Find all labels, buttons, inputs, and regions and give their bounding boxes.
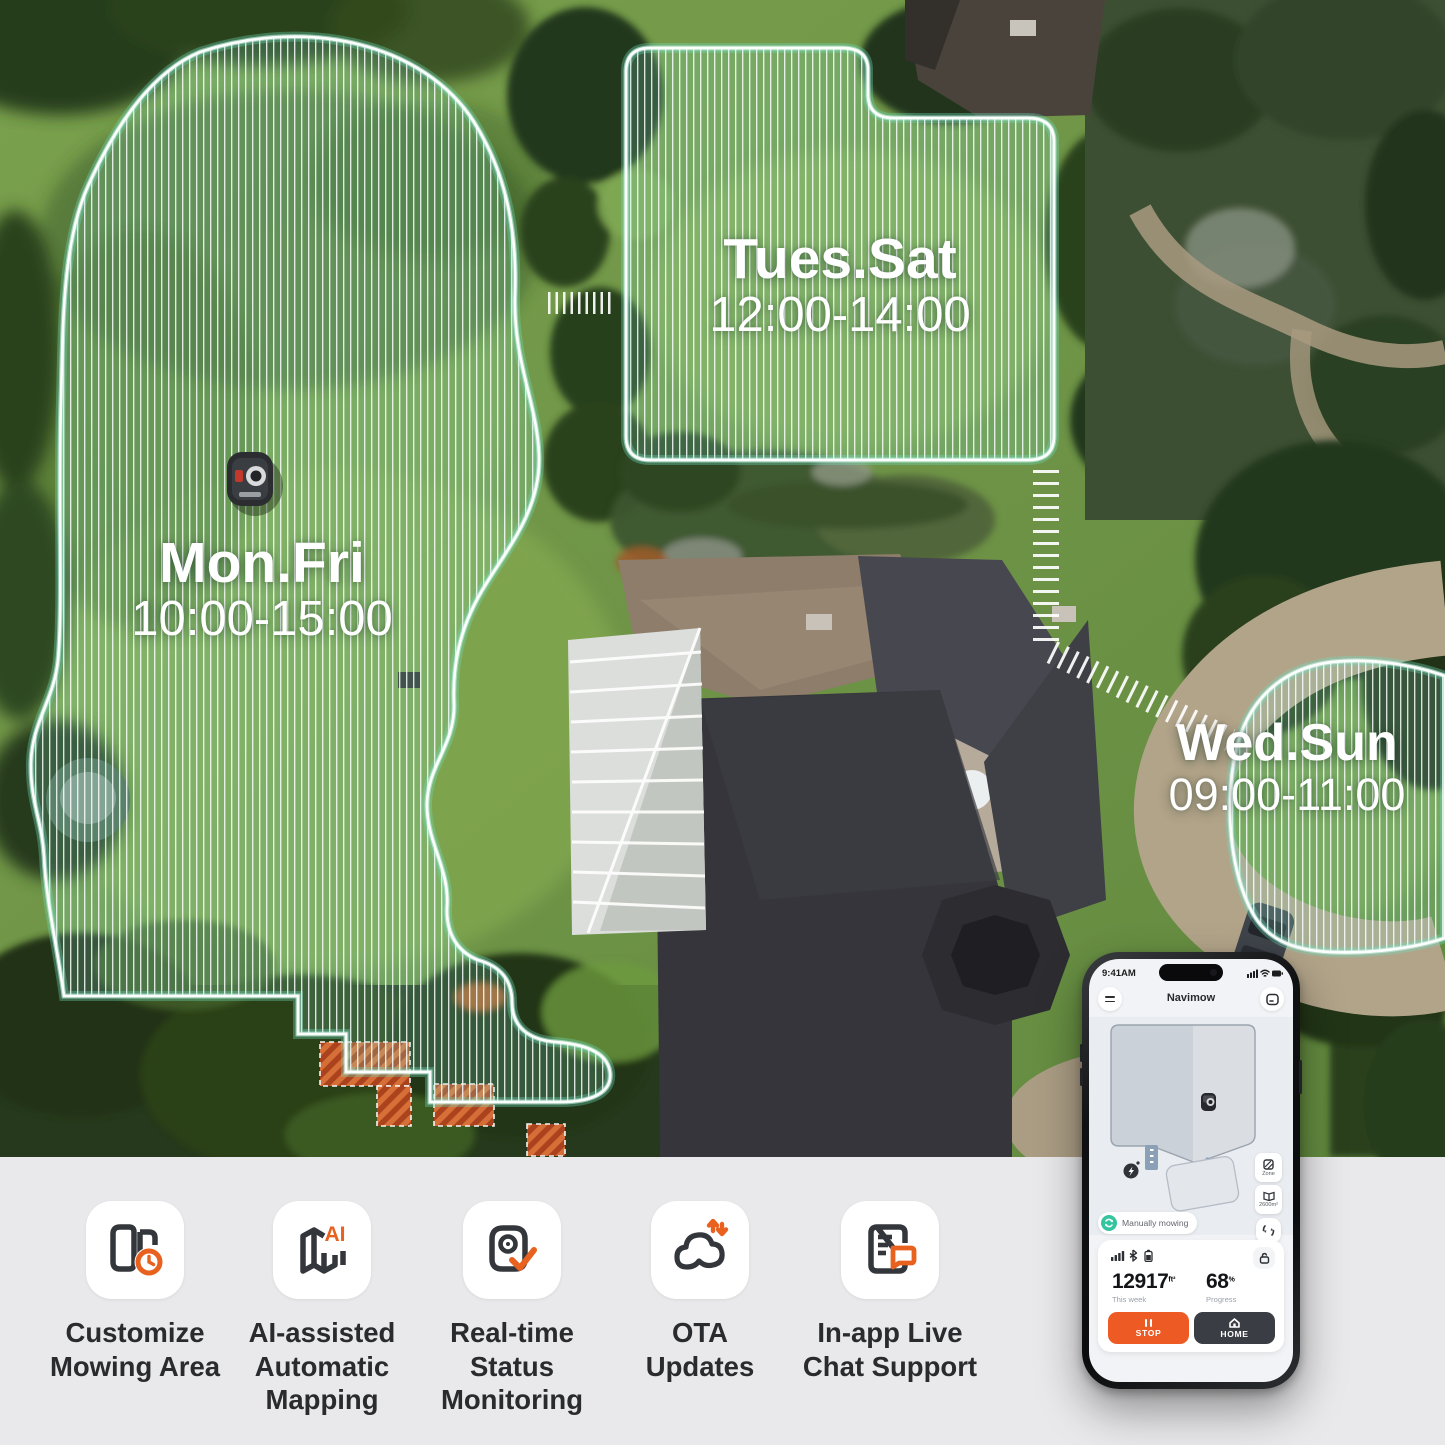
zones-clock-icon [104, 1219, 166, 1281]
stop-button[interactable]: STOP [1108, 1312, 1189, 1344]
progress-value: 68 [1206, 1270, 1229, 1293]
bluetooth-icon [1130, 1250, 1137, 1261]
app-map[interactable]: Zone 2600m² [1089, 1017, 1293, 1235]
message-icon [1266, 993, 1279, 1006]
phone-screen: 9:41AM Navimow [1089, 959, 1293, 1382]
support-chat-button[interactable] [1260, 987, 1284, 1011]
zone-button[interactable]: Zone [1255, 1153, 1282, 1182]
notch [1159, 964, 1223, 981]
battery-icon [1272, 971, 1281, 977]
turret-roof [922, 885, 1070, 1025]
stop-button-label: STOP [1136, 1328, 1162, 1338]
feature-tile [841, 1201, 939, 1299]
wifi-icon [1261, 970, 1269, 976]
map-area-label: 2600m² [1259, 1202, 1278, 1208]
map-mower-icon [1201, 1093, 1216, 1111]
home-button-label: HOME [1220, 1329, 1248, 1339]
map-home-marker [1124, 1161, 1140, 1178]
cloud-arrows-icon [669, 1219, 731, 1281]
home-icon [1229, 1318, 1240, 1328]
feature-label: Customize Mowing Area [35, 1316, 235, 1383]
area-unit: ft² [1168, 1277, 1175, 1284]
feature-label: Real-time Status Monitoring [412, 1316, 612, 1417]
status-icons [1247, 968, 1283, 978]
ai-badge: AI [325, 1223, 346, 1246]
map-ai-icon: AI [291, 1219, 353, 1281]
battery-icon [1145, 1250, 1152, 1262]
phone-mockup: 9:41AM Navimow [1082, 952, 1300, 1389]
area-value: 12917 [1112, 1270, 1168, 1293]
recenter-icon [1262, 1224, 1275, 1237]
progress-stat: 68% Progress [1206, 1270, 1236, 1304]
volume-up-button [1080, 1044, 1083, 1062]
feature-label: OTA Updates [600, 1316, 800, 1383]
camera-check-icon [481, 1219, 543, 1281]
home-button[interactable]: HOME [1194, 1312, 1275, 1344]
mowing-status-text: Manually mowing [1122, 1218, 1188, 1228]
lock-button[interactable] [1253, 1247, 1275, 1269]
progress-caption: Progress [1206, 1295, 1236, 1304]
feature-label: AI-assisted Automatic Mapping [222, 1316, 422, 1417]
feature-label: In-app Live Chat Support [790, 1316, 990, 1383]
area-stat: 12917ft² This week [1112, 1270, 1175, 1304]
zone-icon [1263, 1159, 1274, 1170]
feature-customize-mowing-area: Customize Mowing Area [35, 1201, 235, 1383]
status-time: 9:41AM [1102, 968, 1136, 979]
conservatory [568, 628, 706, 935]
area-caption: This week [1112, 1295, 1175, 1304]
feature-realtime-monitoring: Real-time Status Monitoring [412, 1201, 612, 1417]
mowing-status-pill[interactable]: Manually mowing [1098, 1212, 1197, 1234]
connectivity-icons [1111, 1249, 1167, 1262]
map-zone-secondary [1165, 1155, 1240, 1212]
feature-tile [651, 1201, 749, 1299]
unlock-icon [1259, 1252, 1270, 1264]
pause-icon [1145, 1319, 1153, 1327]
feature-ota-updates: OTA Updates [600, 1201, 800, 1383]
feature-tile [86, 1201, 184, 1299]
product-infographic: Mon.Fri 10:00-15:00 Tues.Sat 12:00-14:00… [0, 0, 1445, 1445]
zone-button-label: Zone [1262, 1171, 1275, 1177]
feature-ai-mapping: AI AI-assisted Automatic Mapping [222, 1201, 422, 1417]
refresh-icon [1101, 1215, 1117, 1231]
feature-tile: AI [273, 1201, 371, 1299]
feature-live-chat: In-app Live Chat Support [790, 1201, 990, 1383]
status-card: 12917ft² This week 68% Progress STOP [1098, 1240, 1284, 1352]
volume-down-button [1080, 1068, 1083, 1086]
map-area-button[interactable]: 2600m² [1255, 1185, 1282, 1214]
front-camera [1210, 969, 1217, 976]
doc-chat-icon [859, 1219, 921, 1281]
map-connector [1145, 1145, 1158, 1170]
progress-unit: % [1229, 1277, 1235, 1284]
map-book-icon [1263, 1191, 1275, 1201]
feature-tile [463, 1201, 561, 1299]
mowing-zone-wed-sun [1230, 661, 1445, 953]
power-button [1299, 1060, 1302, 1094]
